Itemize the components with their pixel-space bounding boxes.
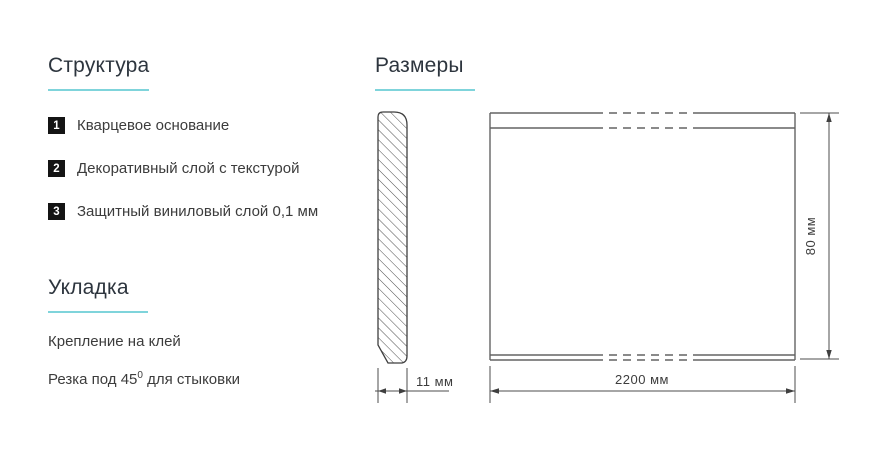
height-label: 80 мм bbox=[803, 217, 818, 255]
dimensions-heading: Размеры bbox=[375, 54, 475, 91]
profile-outline bbox=[378, 112, 407, 363]
layer-3-number-badge: 3 bbox=[48, 203, 65, 220]
layer-1-label: Кварцевое основание bbox=[77, 117, 229, 134]
layer-3-label: Защитный виниловый слой 0,1 мм bbox=[77, 203, 318, 220]
installation-glue-line: Крепление на клей bbox=[48, 333, 181, 350]
profile-side-view bbox=[378, 112, 407, 363]
structure-heading: Структура bbox=[48, 54, 149, 91]
arrowhead-top bbox=[826, 113, 831, 122]
arrowhead-left bbox=[378, 388, 386, 393]
layer-2-label: Декоративный слой с текстурой bbox=[77, 160, 299, 177]
thickness-label: 11 мм bbox=[416, 374, 453, 389]
arrowhead-bottom bbox=[826, 350, 831, 359]
arrowhead-left bbox=[490, 388, 499, 393]
structure-item-2: 2 Декоративный слой с текстурой bbox=[48, 160, 299, 177]
arrowhead-right bbox=[786, 388, 795, 393]
installation-heading: Укладка bbox=[48, 276, 148, 313]
structure-item-3: 3 Защитный виниловый слой 0,1 мм bbox=[48, 203, 318, 220]
structure-item-1: 1 Кварцевое основание bbox=[48, 117, 229, 134]
technical-drawing: 11 мм 2200 мм 80 мм bbox=[363, 95, 873, 420]
page: { "accent_color": "#7fd4db", "structure"… bbox=[0, 0, 887, 467]
installation-cut-line: Резка под 450 для стыковки bbox=[48, 370, 240, 388]
arrowhead-right bbox=[399, 388, 407, 393]
length-label: 2200 мм bbox=[615, 372, 669, 387]
layer-1-number-badge: 1 bbox=[48, 117, 65, 134]
panel-front-view bbox=[490, 113, 795, 360]
layer-2-number-badge: 2 bbox=[48, 160, 65, 177]
